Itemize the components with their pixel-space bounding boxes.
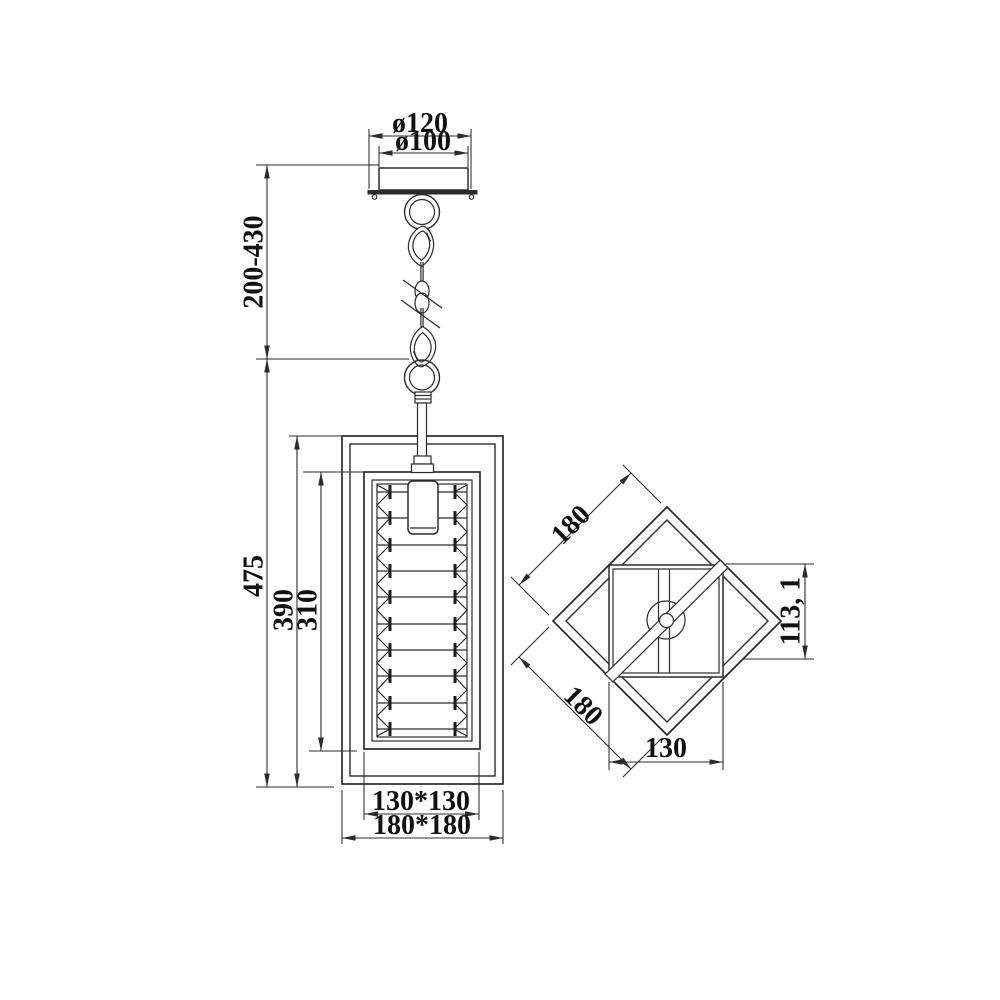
dim-canopy-inner-label: ø100 [395,126,451,157]
technical-drawing-page: ø120 ø100 200-430 475 390 310 [0,0,1000,1000]
stem-assembly [412,392,434,473]
lamp-socket [408,481,438,534]
dim-edge-lower-label: 180 [557,680,609,732]
dim-shade-height-label: 310 [293,589,324,631]
dim-overall-height-label: 475 [239,555,270,597]
chain-ring-bottom [405,360,440,395]
dim-outer-width-label: 180*180 [373,810,471,841]
pendant-lamp-drawing: ø120 ø100 200-430 475 390 310 [0,0,1000,1000]
dim-top-inner-width-label: 130 [645,733,687,764]
socket-hole [660,614,674,628]
top-view: 180 180 130 113, 1 [511,465,814,777]
dim-edge-upper-label: 180 [545,499,597,551]
dim-diagonal-projection-label: 113, 1 [776,577,807,645]
front-view: ø120 ø100 200-430 475 390 310 [239,108,504,844]
chain-ring-top [405,195,440,230]
carabiner-top [408,226,433,266]
suspension-chain [401,195,442,473]
dim-suspension-height-label: 200-430 [239,215,270,308]
